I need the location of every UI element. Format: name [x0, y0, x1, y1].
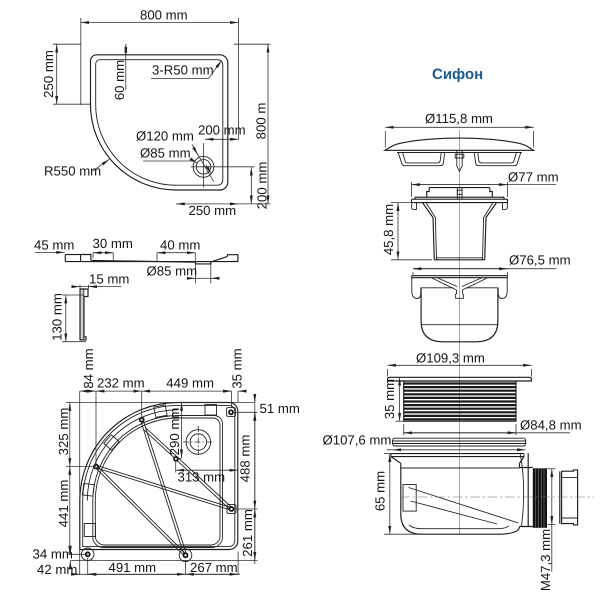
svg-text:45 mm: 45 mm — [34, 238, 74, 253]
svg-text:Ø84,8 mm: Ø84,8 mm — [520, 418, 582, 433]
svg-text:34 mm: 34 mm — [33, 547, 73, 562]
svg-text:15 mm: 15 mm — [89, 272, 129, 287]
svg-text:200 mm: 200 mm — [255, 162, 270, 210]
svg-text:Сифон: Сифон — [432, 66, 483, 83]
svg-text:65 mm: 65 mm — [373, 471, 388, 511]
svg-text:200 mm: 200 mm — [198, 123, 246, 138]
svg-text:290 mm: 290 mm — [167, 408, 182, 456]
svg-text:250 mm: 250 mm — [41, 50, 56, 98]
svg-text:30 mm: 30 mm — [93, 236, 133, 251]
svg-text:51 mm: 51 mm — [260, 401, 300, 416]
svg-text:130 mm: 130 mm — [50, 293, 65, 341]
svg-text:Ø85 mm: Ø85 mm — [147, 264, 198, 279]
svg-text:Ø120 mm: Ø120 mm — [136, 129, 194, 144]
svg-text:488 mm: 488 mm — [238, 435, 253, 483]
svg-text:Ø107,6 mm: Ø107,6 mm — [323, 433, 392, 448]
svg-text:3-R50 mm: 3-R50 mm — [152, 63, 214, 78]
svg-text:800 m: 800 m — [254, 103, 269, 140]
svg-text:40 mm: 40 mm — [160, 238, 200, 253]
svg-text:449 mm: 449 mm — [166, 375, 214, 390]
svg-text:Ø85 mm: Ø85 mm — [140, 146, 191, 161]
svg-text:Ø115,8 mm: Ø115,8 mm — [425, 111, 493, 126]
svg-text:441 mm: 441 mm — [56, 480, 71, 528]
svg-text:313 mm: 313 mm — [178, 470, 226, 485]
svg-text:R550 mm: R550 mm — [44, 164, 101, 179]
svg-text:800 mm: 800 mm — [140, 8, 188, 23]
svg-text:Ø76,5 mm: Ø76,5 mm — [509, 253, 571, 268]
svg-text:325 mm: 325 mm — [56, 408, 71, 456]
svg-text:491 mm: 491 mm — [109, 560, 157, 575]
svg-text:84 mm: 84 mm — [81, 348, 96, 388]
svg-text:232 mm: 232 mm — [97, 375, 145, 390]
svg-text:45,8 mm: 45,8 mm — [381, 204, 396, 255]
svg-text:35 mm: 35 mm — [230, 348, 245, 388]
svg-text:42 mm: 42 mm — [37, 562, 77, 577]
svg-text:Ø109,3 mm: Ø109,3 mm — [416, 351, 485, 366]
svg-text:250 mm: 250 mm — [189, 203, 237, 218]
svg-text:267 mm: 267 mm — [190, 560, 238, 575]
svg-text:Ø77 mm: Ø77 mm — [508, 170, 559, 185]
svg-text:261 mm: 261 mm — [240, 509, 255, 557]
svg-text:60 mm: 60 mm — [112, 60, 127, 100]
svg-text:35 mm: 35 mm — [382, 379, 397, 419]
svg-text:M47,3 mm: M47,3 mm — [538, 529, 553, 591]
